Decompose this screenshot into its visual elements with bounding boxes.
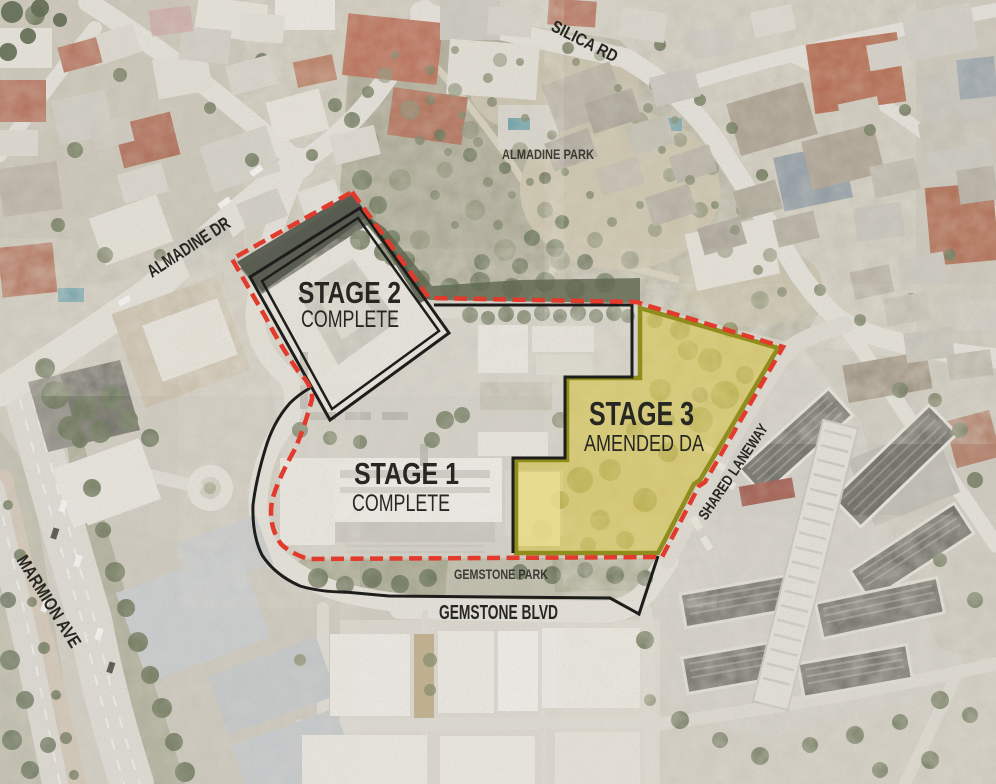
svg-text:GEMSTONE BLVD: GEMSTONE BLVD [439, 602, 558, 624]
svg-text:GEMSTONE PARK: GEMSTONE PARK [454, 566, 548, 582]
svg-text:COMPLETE: COMPLETE [301, 306, 399, 333]
svg-text:STAGE 3: STAGE 3 [589, 395, 694, 432]
svg-text:ALMADINE PARK: ALMADINE PARK [502, 146, 594, 162]
svg-text:STAGE 2: STAGE 2 [298, 275, 401, 310]
svg-text:COMPLETE: COMPLETE [352, 490, 450, 517]
svg-text:AMENDED DA: AMENDED DA [584, 430, 705, 456]
svg-text:STAGE 1: STAGE 1 [354, 456, 459, 491]
